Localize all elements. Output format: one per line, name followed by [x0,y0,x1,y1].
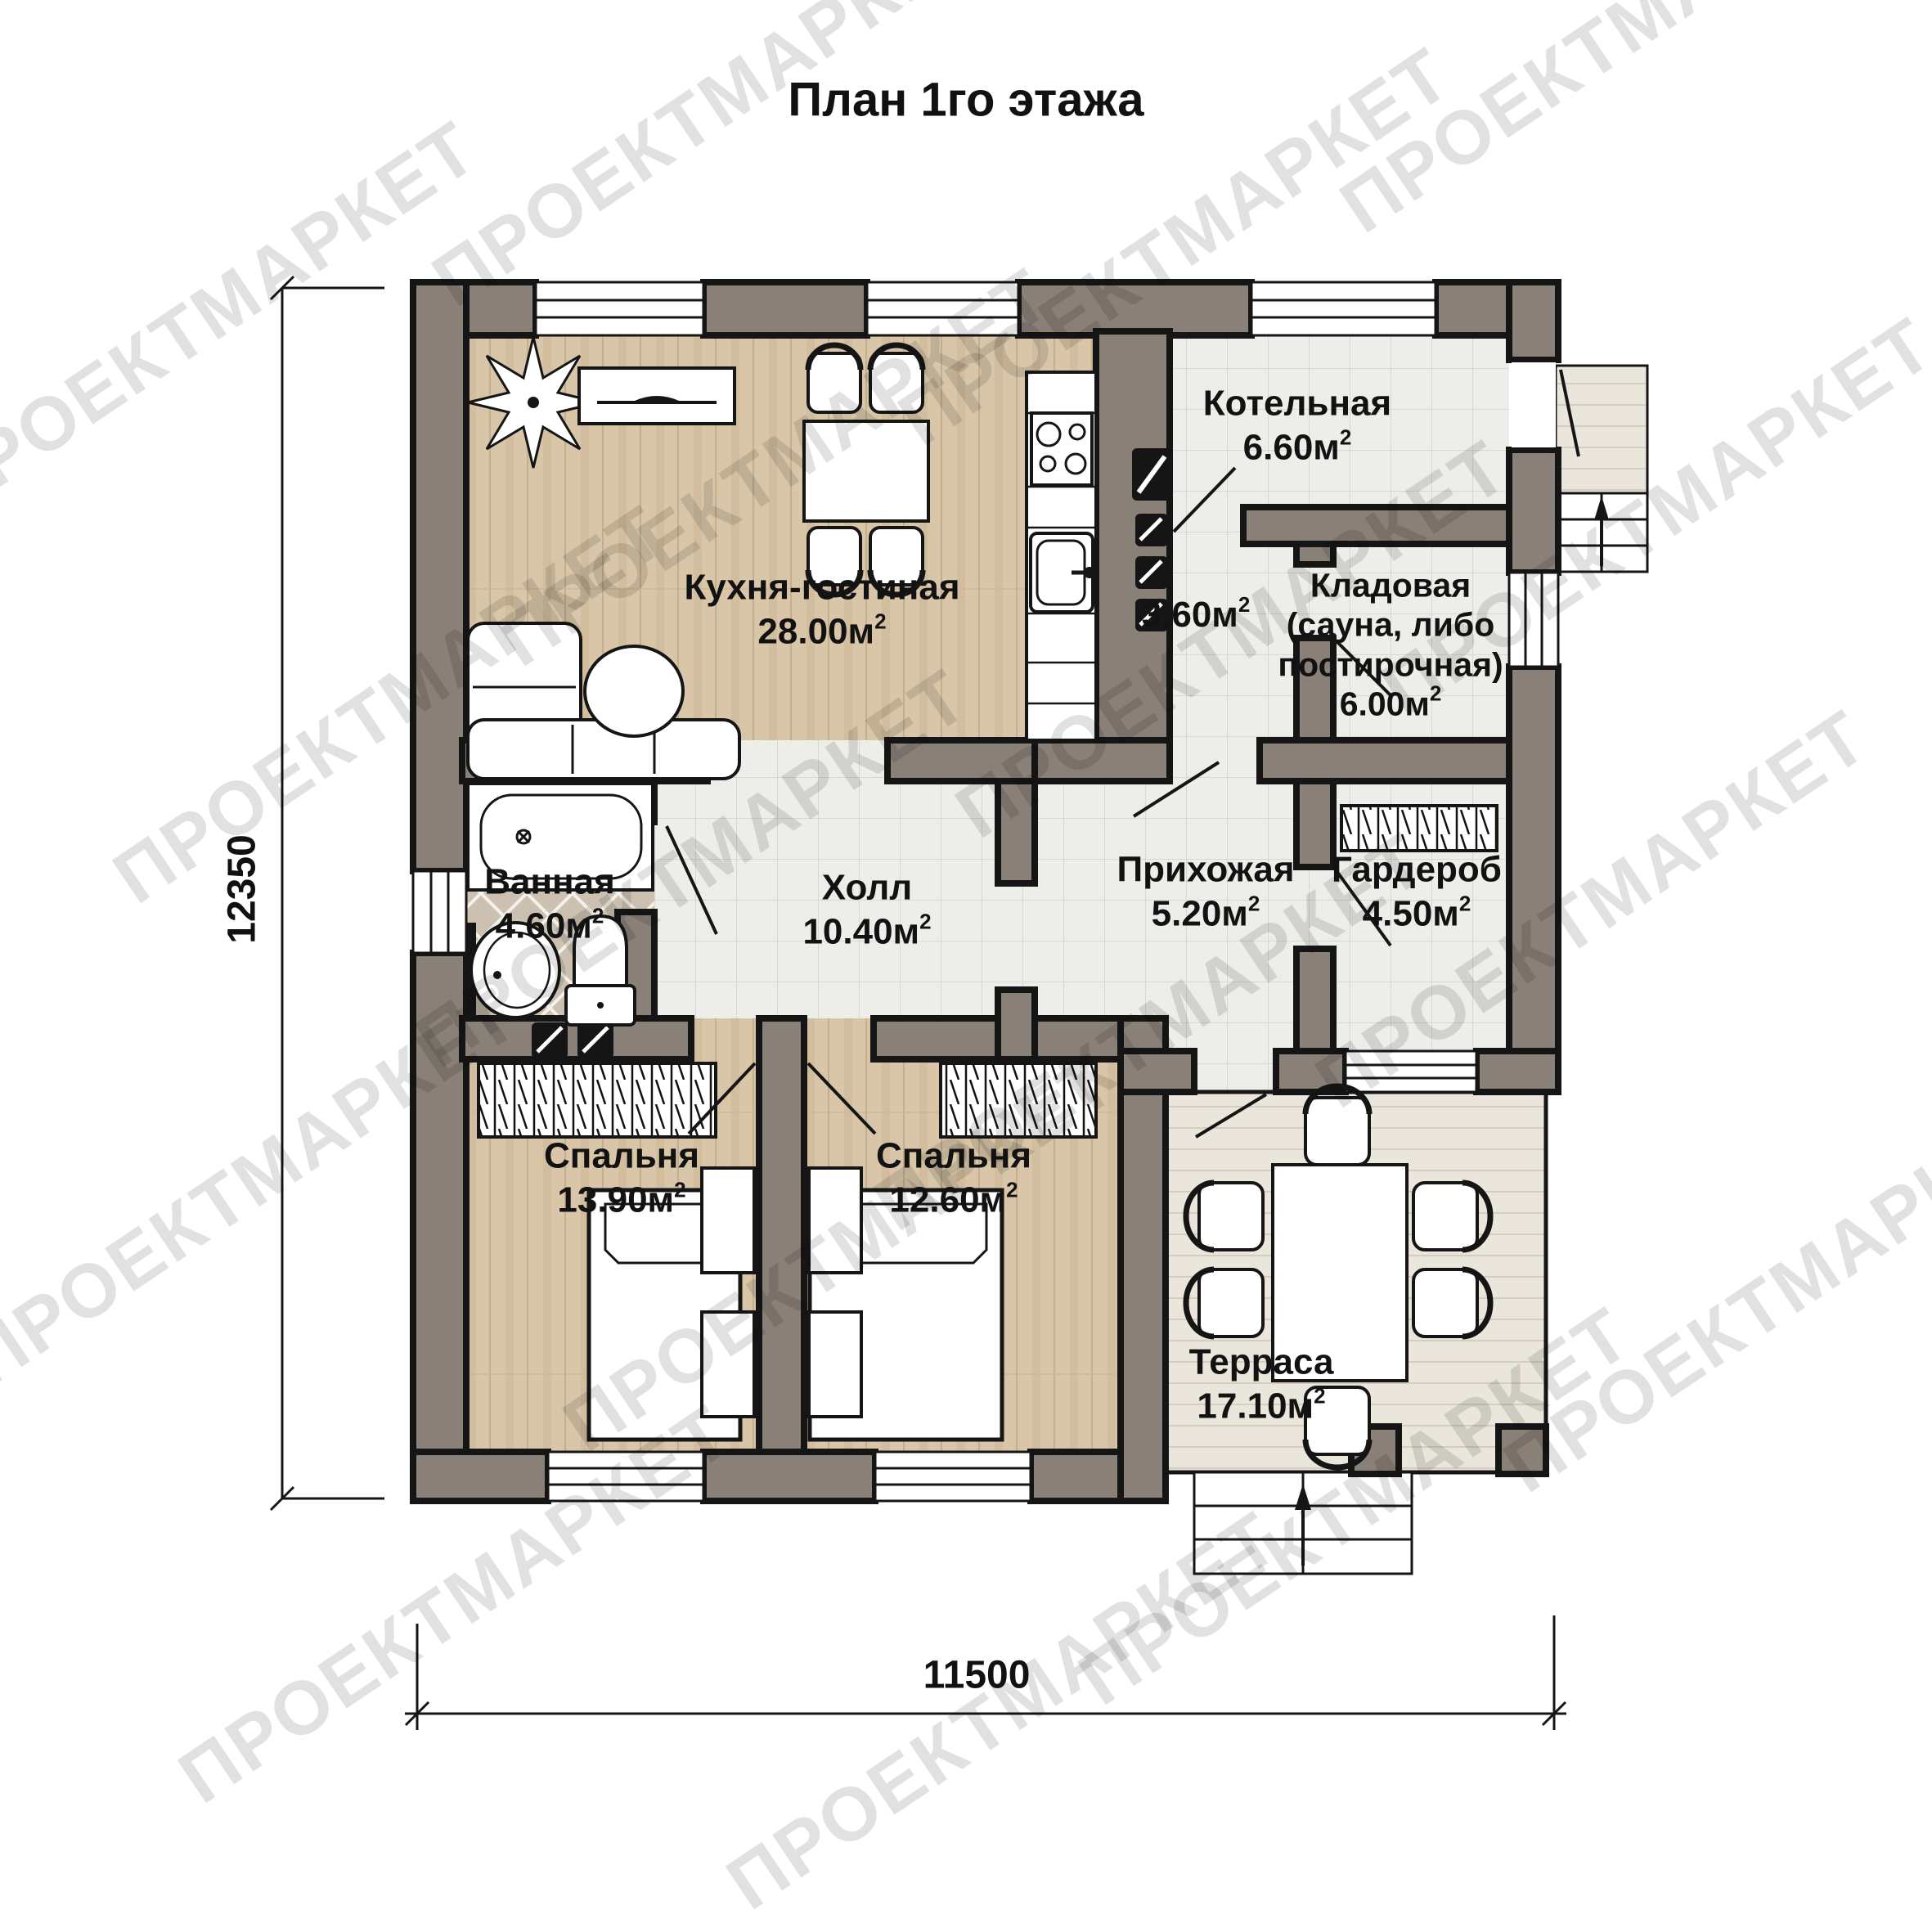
room-label-storage: Кладовая (сауна, либо постирочная) 6.00м… [1278,565,1503,724]
room-label-bedroom1: Спальня 13.90м2 [544,1134,699,1221]
nightstand-icon [809,1312,861,1417]
room-label-hall: Холл 10.40м2 [802,865,931,953]
terrace-chair-icon [1413,1269,1490,1337]
window-bedroom1 [548,1452,703,1501]
terrace-post [1498,1427,1546,1474]
room-area: 17.10м [1197,1386,1314,1426]
coffee-table-icon [585,646,683,736]
room-area: 28.00м [757,611,874,651]
room-name: Спальня [544,1134,699,1178]
room-label-entry: Прихожая 5.20м2 [1117,847,1294,935]
dining-table-icon [804,421,928,521]
room-name: (сауна, либо [1278,605,1503,645]
room-label-bedroom2: Спальня 12.60м2 [876,1134,1031,1221]
wardrobe-hatch-icon [479,1063,716,1137]
dining-chair-icon [870,345,923,412]
room-area: 3.60м [1142,595,1238,635]
room-area: 5.20м [1152,893,1248,933]
room-name: постирочная) [1278,645,1503,684]
room-name: Ванная [484,860,615,904]
vent-icon [532,1022,568,1058]
boiler-exterior-door-opening [1512,362,1556,447]
entrance-porch [1556,366,1647,572]
room-name: Кладовая [1278,565,1503,604]
room-area: 6.00м [1340,685,1430,722]
room-label-kitchen-living: Кухня-гостиная 28.00м2 [684,565,959,653]
room-area: 4.50м [1363,893,1459,933]
floor-plan-graphic [0,0,1932,1932]
room-name: Терраса [1189,1340,1334,1384]
room-name: Кухня-гостиная [684,565,959,609]
nightstand-icon [702,1168,754,1273]
wardrobe-hatch-icon [941,1063,1096,1137]
window-kitchen-1 [536,282,703,335]
vent-icon [1135,514,1168,546]
page-title: План 1го этажа [788,73,1143,128]
room-area: 10.40м [802,911,919,951]
clothes-rail-icon [1341,806,1497,851]
window-boiler [1251,282,1436,335]
window-bedroom2 [875,1452,1031,1501]
room-area: 13.90м [557,1179,674,1220]
tv-icon [579,368,735,424]
room-label-corridor: 3.60м2 [1142,593,1251,637]
room-name: Спальня [876,1134,1031,1178]
vent-icon [577,1022,613,1058]
room-name: Прихожая [1117,847,1294,892]
room-area: 6.60м [1243,427,1340,467]
dimension-height: 12350 [220,834,265,943]
terrace-chair-icon [1186,1183,1263,1250]
room-label-wardrobe: Гардероб 4.50м2 [1332,847,1502,935]
vent-icon [1132,448,1171,501]
stove-icon [1031,413,1092,485]
porch-landing [1556,366,1647,493]
window-kitchen-2 [867,282,1018,335]
nightstand-icon [809,1168,861,1273]
room-name: Холл [802,865,931,910]
dimension-width: 11500 [923,1653,1031,1698]
terrace-steps [1194,1472,1412,1574]
floor-plan-page: ПРОЕКТМАРКЕТ ПРОЕКТМАРКЕТ ПРОЕКТМАРКЕТ П… [0,0,1932,1932]
window-entry-terrace [1346,1051,1476,1092]
window-bathroom [413,871,466,953]
room-label-boiler: Котельная 6.60м2 [1203,381,1391,469]
kitchen-sink-icon [1031,533,1095,612]
room-name: Котельная [1203,381,1391,425]
vent-icon [1135,556,1168,589]
room-area: 12.60м [889,1179,1006,1220]
room-area: 4.60м [496,905,592,946]
dining-chair-icon [808,345,860,412]
window-storage [1509,573,1558,667]
room-name: Гардероб [1332,847,1502,892]
terrace-chair-icon [1413,1183,1490,1250]
room-label-terrace: Терраса 17.10м2 [1189,1340,1334,1427]
terrace-chair-icon [1186,1269,1263,1337]
terrace-chair-icon [1305,1086,1369,1165]
room-label-bathroom: Ванная 4.60м2 [484,860,615,947]
nightstand-icon [702,1312,754,1417]
